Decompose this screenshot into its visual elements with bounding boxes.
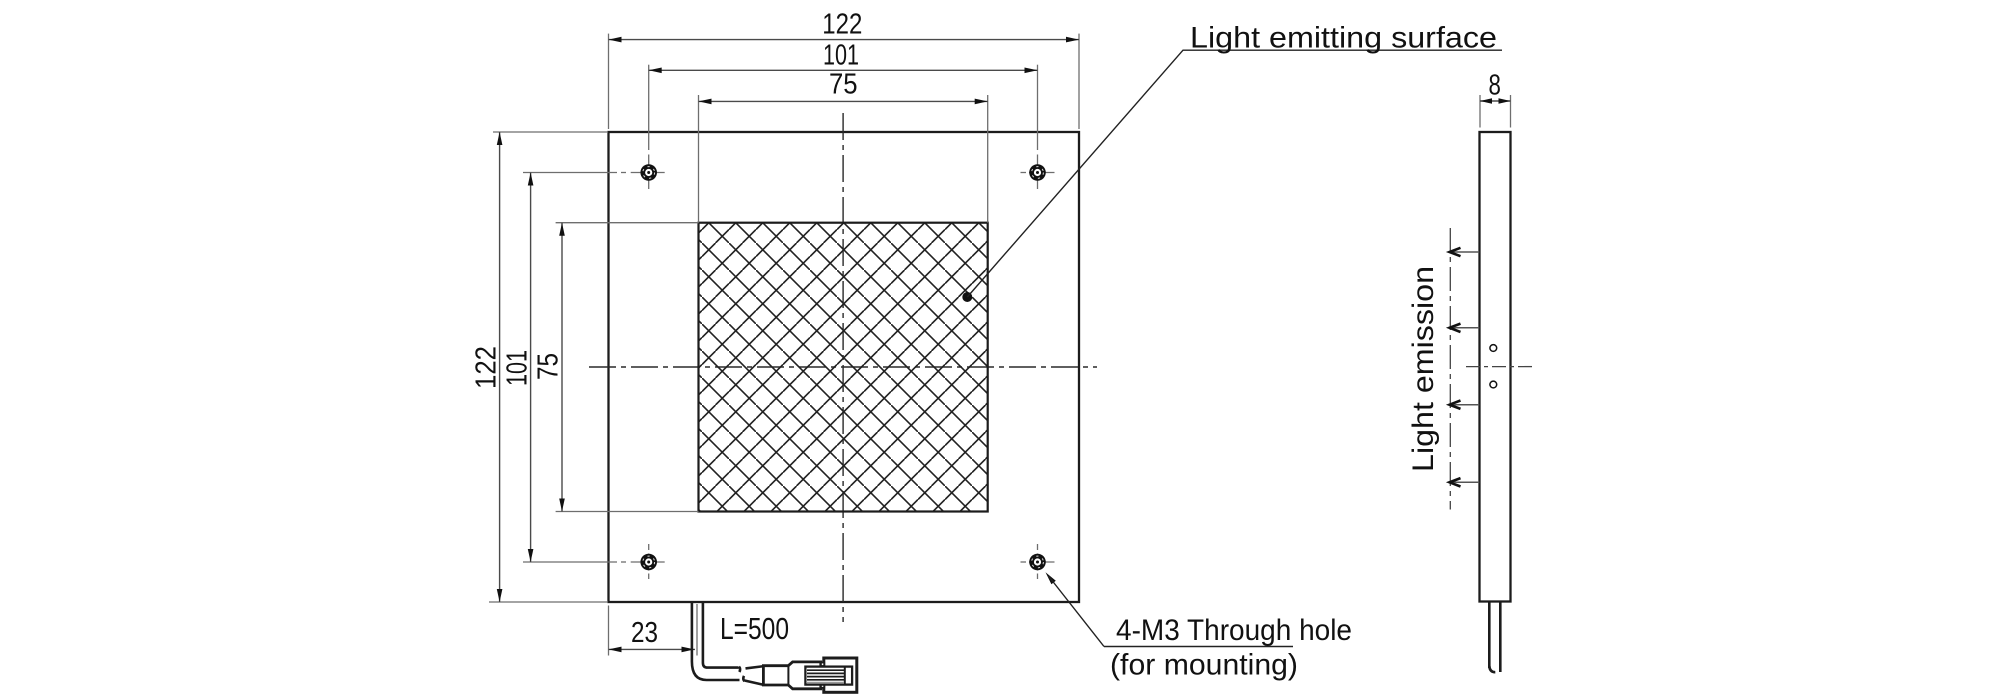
svg-text:75: 75 — [829, 69, 858, 101]
svg-text:101: 101 — [823, 40, 859, 72]
svg-text:122: 122 — [470, 346, 502, 389]
svg-text:101: 101 — [501, 350, 533, 386]
svg-text:L=500: L=500 — [720, 611, 789, 646]
svg-text:8: 8 — [1489, 70, 1501, 102]
svg-text:122: 122 — [822, 9, 862, 41]
svg-text:(for mounting): (for mounting) — [1110, 649, 1298, 682]
svg-text:Light emitting surface: Light emitting surface — [1190, 21, 1497, 54]
svg-text:75: 75 — [532, 353, 564, 380]
svg-text:Light emission: Light emission — [1407, 266, 1440, 472]
svg-text:23: 23 — [631, 617, 658, 649]
svg-text:4-M3 Through hole: 4-M3 Through hole — [1116, 614, 1352, 647]
